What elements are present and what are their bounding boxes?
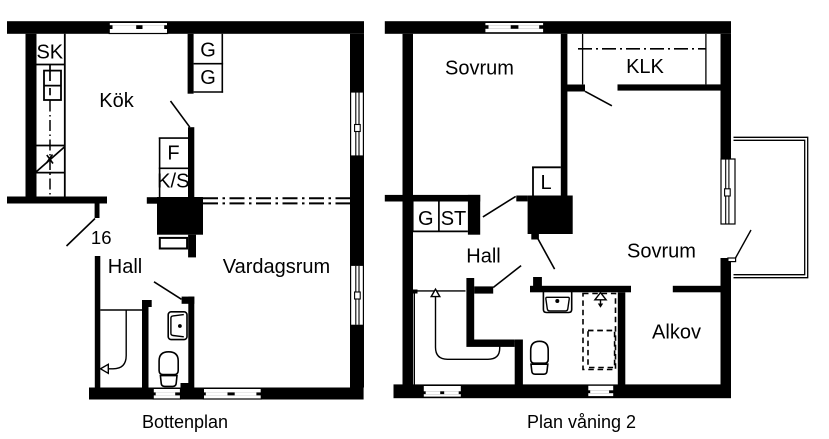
svg-text:Alkov: Alkov — [652, 321, 701, 343]
svg-text:Hall: Hall — [466, 246, 500, 268]
svg-text:G: G — [200, 67, 216, 89]
svg-text:Hall: Hall — [108, 256, 142, 278]
svg-text:Sovrum: Sovrum — [627, 240, 696, 262]
svg-text:G: G — [418, 208, 434, 230]
svg-text:Kök: Kök — [99, 90, 134, 112]
svg-text:Sovrum: Sovrum — [445, 58, 514, 80]
svg-text:K/S: K/S — [157, 171, 189, 193]
svg-text:Plan våning 2: Plan våning 2 — [527, 412, 636, 432]
svg-text:L: L — [540, 172, 551, 194]
svg-text:G: G — [200, 40, 216, 62]
svg-text:Bottenplan: Bottenplan — [142, 412, 228, 432]
svg-text:F: F — [167, 143, 179, 165]
svg-text:KLK: KLK — [626, 56, 664, 78]
svg-text:ST: ST — [441, 208, 467, 230]
svg-text:16: 16 — [91, 227, 112, 248]
svg-text:Vardagsrum: Vardagsrum — [223, 256, 330, 278]
svg-text:SK: SK — [36, 42, 63, 64]
